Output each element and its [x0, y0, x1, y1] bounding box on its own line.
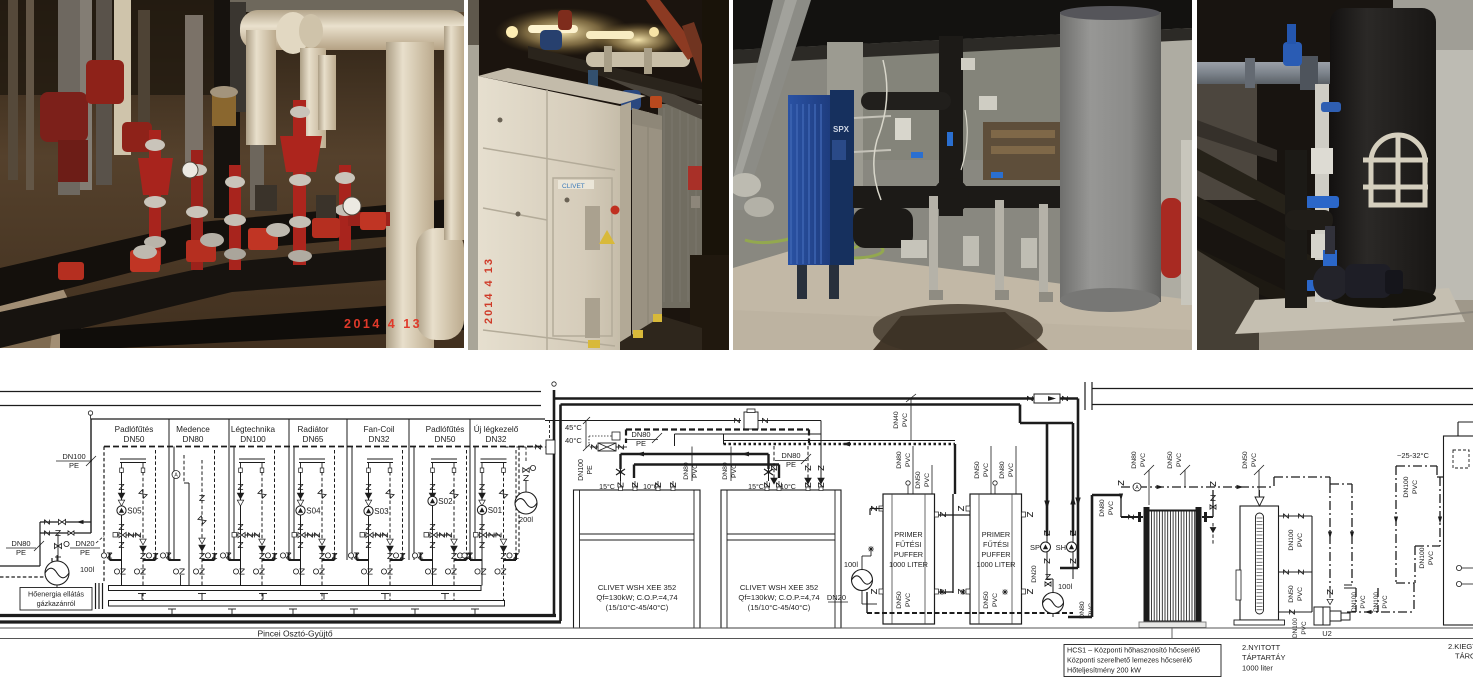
svg-text:DN80: DN80 — [683, 462, 690, 480]
svg-text:Padlófűtés: Padlófűtés — [115, 425, 154, 434]
svg-text:DN80: DN80 — [631, 430, 650, 439]
svg-text:(15/10°C-45/40°C): (15/10°C-45/40°C) — [606, 603, 669, 612]
svg-text:PRIMER: PRIMER — [894, 530, 922, 539]
svg-text:DN100: DN100 — [240, 435, 266, 444]
svg-text:PVC: PVC — [1360, 595, 1367, 609]
svg-text:200l: 200l — [519, 515, 534, 524]
svg-text:~25-32°C: ~25-32°C — [1397, 451, 1430, 460]
svg-text:PVC: PVC — [1140, 453, 1147, 467]
svg-text:DN65: DN65 — [303, 435, 324, 444]
svg-text:DN100: DN100 — [1419, 547, 1426, 568]
svg-text:PVC: PVC — [731, 464, 738, 478]
svg-text:DN32: DN32 — [486, 435, 507, 444]
svg-text:100l: 100l — [1058, 582, 1073, 591]
svg-text:1000 LITER: 1000 LITER — [977, 560, 1016, 569]
svg-text:Fan-Coil: Fan-Coil — [364, 425, 395, 434]
svg-text:PVC: PVC — [1088, 603, 1095, 617]
svg-text:DN80: DN80 — [1099, 499, 1106, 517]
svg-text:100l: 100l — [80, 565, 95, 574]
svg-text:Hőenergia ellátás: Hőenergia ellátás — [28, 590, 84, 599]
svg-text:Pincei Osztó-Gyüjtő: Pincei Osztó-Gyüjtő — [257, 629, 332, 639]
svg-text:DN20: DN20 — [1031, 565, 1038, 583]
svg-text:DN50: DN50 — [974, 461, 981, 479]
svg-text:PUFFER: PUFFER — [894, 550, 923, 559]
svg-text:Hőteljesítmény 200 kW: Hőteljesítmény 200 kW — [1067, 666, 1141, 675]
svg-text:PVC: PVC — [1251, 453, 1258, 467]
svg-text:DN20: DN20 — [827, 593, 846, 602]
svg-text:(15/10°C-45/40°C): (15/10°C-45/40°C) — [748, 603, 811, 612]
svg-text:DN100: DN100 — [1351, 592, 1358, 612]
svg-text:PVC: PVC — [902, 413, 909, 427]
svg-text:DN100: DN100 — [1288, 529, 1295, 550]
svg-text:DN50: DN50 — [915, 471, 922, 489]
svg-text:1000 liter: 1000 liter — [1242, 664, 1273, 673]
svg-text:FŰTÉSI: FŰTÉSI — [896, 540, 922, 549]
svg-text:PVC: PVC — [992, 593, 999, 607]
svg-text:PRIMER: PRIMER — [982, 530, 1010, 539]
svg-text:DN80: DN80 — [183, 435, 204, 444]
svg-text:DN32: DN32 — [369, 435, 390, 444]
svg-text:DN100: DN100 — [1403, 476, 1410, 497]
svg-text:SPX: SPX — [833, 125, 850, 134]
svg-text:CLIVET: CLIVET — [562, 183, 585, 190]
svg-text:Medence: Medence — [176, 425, 210, 434]
svg-text:PE: PE — [69, 461, 79, 470]
svg-text:Qf=130kW; C.O.P.=4,74: Qf=130kW; C.O.P.=4,74 — [596, 593, 677, 602]
svg-text:Qf=130kW; C.O.P.=4,74: Qf=130kW; C.O.P.=4,74 — [738, 593, 819, 602]
svg-text:DN80: DN80 — [896, 451, 903, 469]
svg-text:U2: U2 — [1322, 629, 1332, 638]
svg-text:DN50: DN50 — [1288, 585, 1295, 603]
svg-text:DN20: DN20 — [75, 539, 94, 548]
svg-text:PVC: PVC — [692, 464, 699, 478]
svg-text:Radiátor: Radiátor — [298, 425, 329, 434]
svg-text:PVC: PVC — [1297, 587, 1304, 601]
svg-text:PVC: PVC — [1428, 551, 1435, 565]
svg-text:DN80: DN80 — [781, 451, 800, 460]
svg-text:PVC: PVC — [983, 463, 990, 477]
svg-text:S02: S02 — [438, 497, 453, 506]
svg-text:PE: PE — [587, 465, 594, 475]
svg-text:DN50: DN50 — [435, 435, 456, 444]
svg-text:15°C: 15°C — [748, 483, 764, 491]
svg-text:S04: S04 — [306, 506, 321, 515]
svg-text:DN100: DN100 — [1373, 592, 1380, 612]
svg-text:1000 LITER: 1000 LITER — [889, 560, 928, 569]
svg-text:2014 4 13: 2014 4 13 — [483, 257, 495, 324]
svg-text:DN50: DN50 — [896, 591, 903, 609]
svg-text:2.NYITOTT: 2.NYITOTT — [1242, 643, 1281, 652]
svg-text:PE: PE — [16, 548, 26, 557]
svg-text:S01: S01 — [488, 506, 503, 515]
svg-text:DN100: DN100 — [62, 452, 85, 461]
svg-text:DN40: DN40 — [893, 411, 900, 429]
svg-text:PE: PE — [786, 460, 796, 469]
svg-text:PVC: PVC — [1382, 595, 1389, 609]
svg-text:SP: SP — [1030, 543, 1040, 552]
svg-text:DN80: DN80 — [11, 539, 30, 548]
svg-text:Padlófűtés: Padlófűtés — [426, 425, 465, 434]
svg-text:2.KIEGY: 2.KIEGY — [1448, 642, 1473, 651]
svg-text:PE: PE — [80, 548, 90, 557]
svg-text:DN50: DN50 — [124, 435, 145, 444]
svg-text:DN50: DN50 — [983, 591, 990, 609]
svg-text:40°C: 40°C — [565, 436, 582, 445]
svg-text:DN50: DN50 — [1167, 451, 1174, 469]
svg-text:Új légkezelő: Új légkezelő — [474, 424, 519, 434]
svg-text:PVC: PVC — [1108, 501, 1115, 515]
svg-text:CLIVET WSH XEE 352: CLIVET WSH XEE 352 — [740, 583, 818, 592]
svg-text:PVC: PVC — [905, 593, 912, 607]
svg-text:PVC: PVC — [924, 473, 931, 487]
svg-text:2014 4 13: 2014 4 13 — [344, 317, 422, 331]
svg-text:HCS1 – Központi hőhasznosító: HCS1 – Központi hőhasznosító hőcserélő — [1067, 646, 1200, 655]
svg-text:PE: PE — [636, 439, 646, 448]
svg-text:PVC: PVC — [1412, 480, 1419, 494]
svg-text:PVC: PVC — [905, 453, 912, 467]
svg-text:DN80: DN80 — [722, 462, 729, 480]
svg-text:DN80: DN80 — [1079, 601, 1086, 619]
svg-text:gázkazánról: gázkazánról — [37, 599, 76, 608]
svg-text:DN80: DN80 — [999, 461, 1006, 479]
svg-text:PVC: PVC — [1176, 453, 1183, 467]
svg-text:S03: S03 — [374, 507, 389, 516]
svg-text:Központi szerelhető lemezes: Központi szerelhető lemezes hőcserélő — [1067, 656, 1192, 665]
svg-text:45°C: 45°C — [565, 423, 582, 432]
svg-text:CLIVET WSH XEE 352: CLIVET WSH XEE 352 — [598, 583, 676, 592]
svg-text:100l: 100l — [844, 560, 859, 569]
svg-text:PUFFER: PUFFER — [981, 550, 1010, 559]
svg-text:Légtechnika: Légtechnika — [231, 425, 276, 434]
svg-text:S05: S05 — [127, 506, 142, 515]
svg-text:10°C: 10°C — [780, 483, 796, 491]
svg-text:15°C: 15°C — [599, 483, 615, 491]
svg-text:DN80: DN80 — [1131, 451, 1138, 469]
svg-text:FŰTÉSI: FŰTÉSI — [983, 540, 1009, 549]
svg-text:TÁRO: TÁRO — [1455, 652, 1473, 661]
svg-text:TÁPTARTÁY: TÁPTARTÁY — [1242, 653, 1285, 662]
svg-text:DN100: DN100 — [578, 459, 585, 481]
svg-text:PVC: PVC — [1297, 533, 1304, 547]
svg-text:SH: SH — [1056, 543, 1066, 552]
svg-text:DN50: DN50 — [1242, 451, 1249, 469]
svg-text:PVC: PVC — [1008, 463, 1015, 477]
